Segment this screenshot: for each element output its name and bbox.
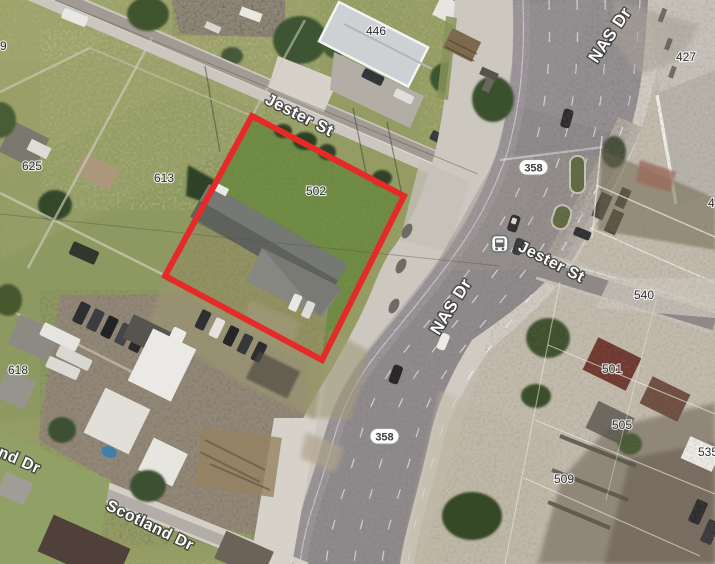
svg-text:505: 505 (612, 418, 632, 432)
svg-text:509: 509 (554, 472, 574, 486)
svg-text:535: 535 (698, 445, 715, 459)
svg-text:501: 501 (602, 362, 622, 376)
svg-text:446: 446 (366, 24, 386, 38)
svg-text:427: 427 (676, 50, 696, 64)
svg-text:625: 625 (22, 159, 42, 173)
svg-text:613: 613 (154, 171, 174, 185)
svg-text:9: 9 (0, 39, 7, 53)
svg-text:540: 540 (634, 288, 654, 302)
svg-text:502: 502 (306, 184, 326, 198)
svg-text:358: 358 (524, 163, 542, 175)
svg-text:4: 4 (708, 196, 715, 210)
svg-text:358: 358 (375, 432, 393, 444)
svg-text:618: 618 (8, 363, 28, 377)
